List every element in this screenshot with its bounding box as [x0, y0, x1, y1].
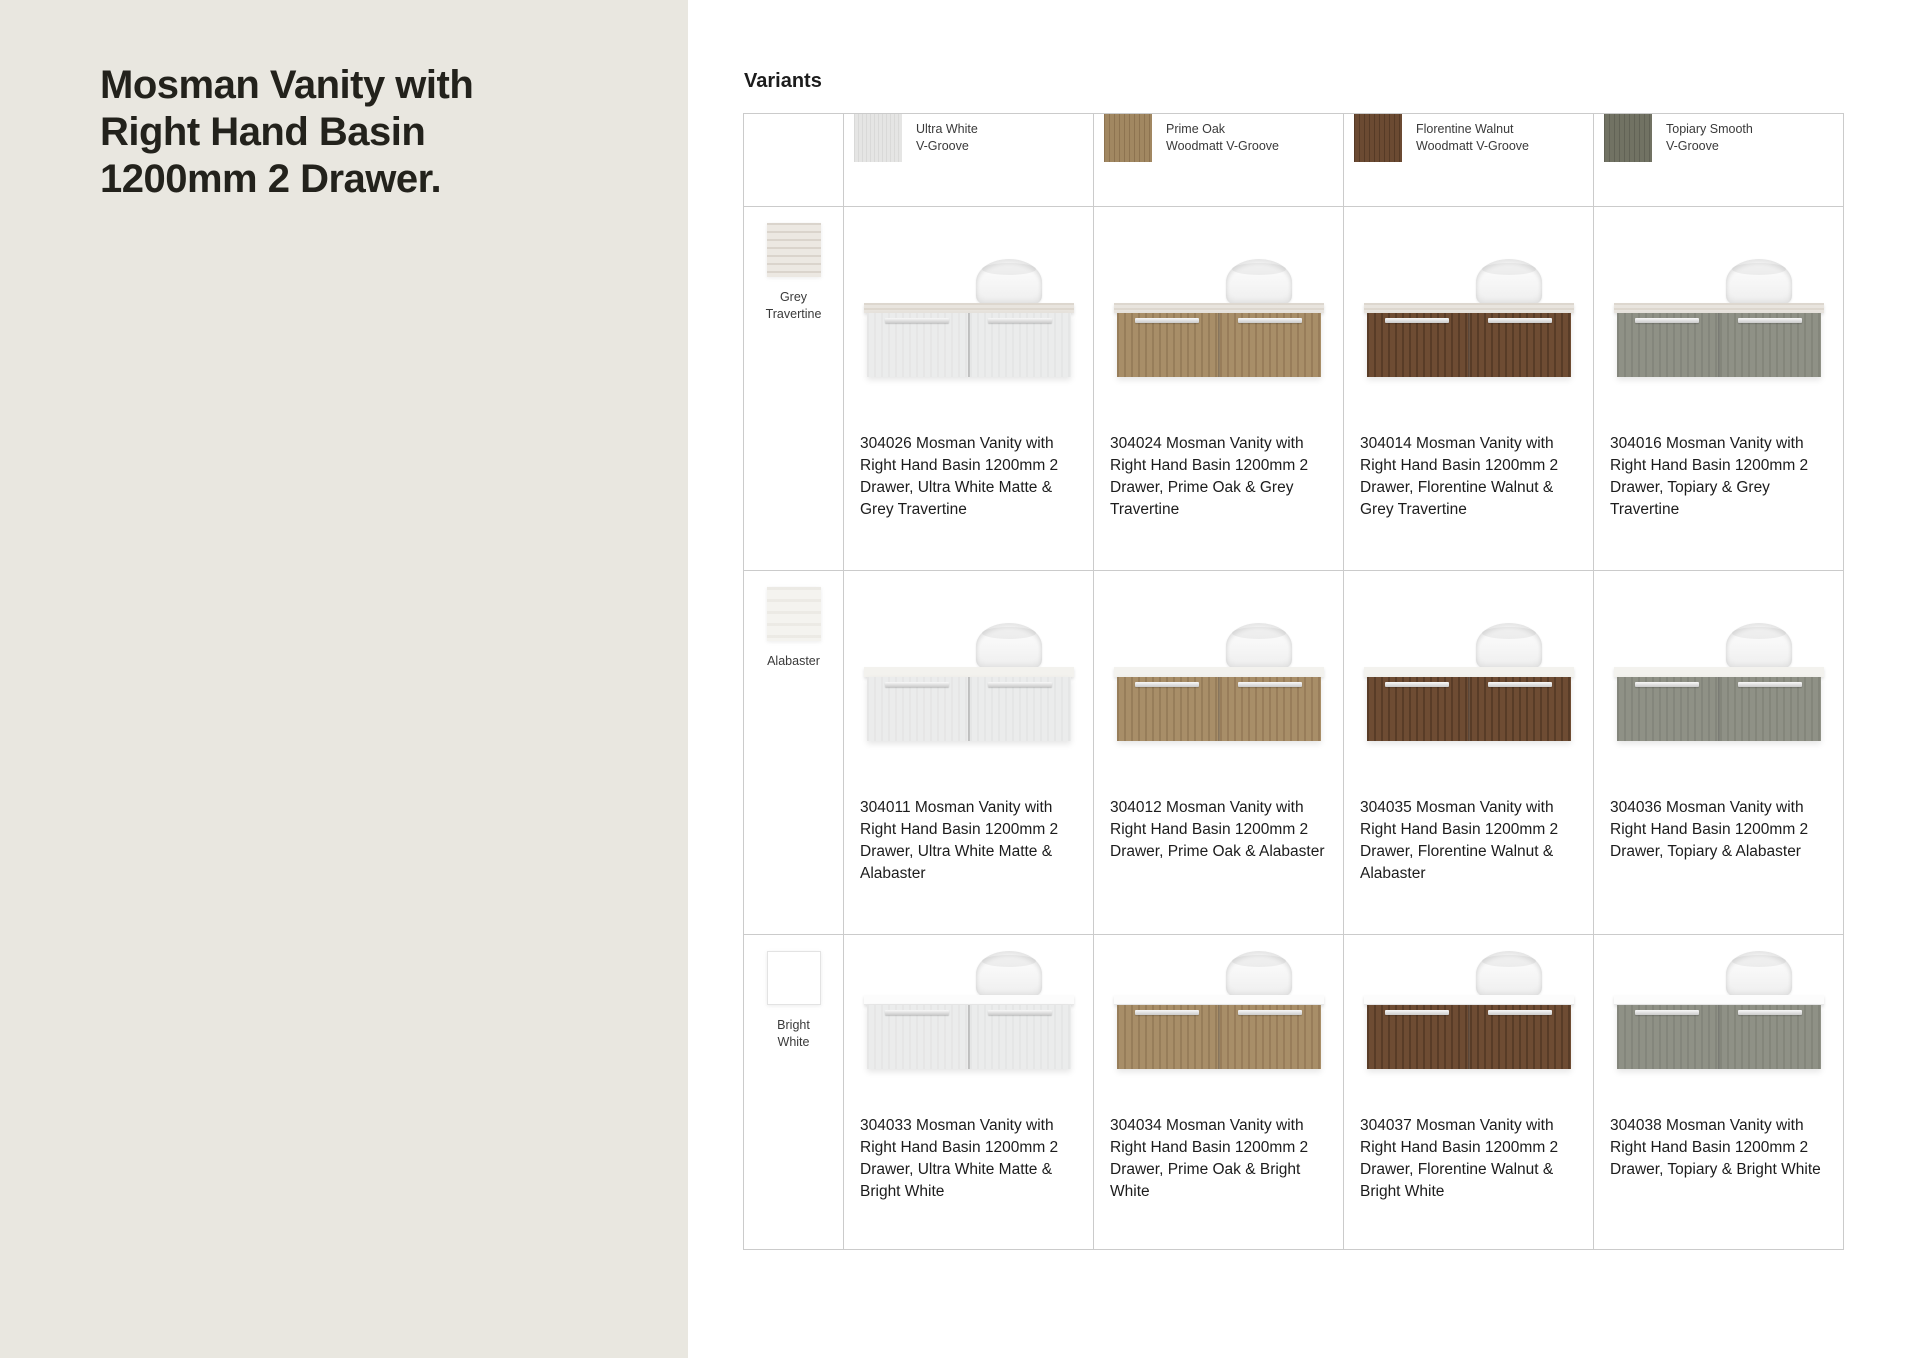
variant-cell: 304038 Mosman Vanity with Right Hand Bas…: [1594, 935, 1844, 1250]
page-title: Mosman Vanity with Right Hand Basin 1200…: [100, 62, 500, 204]
drawer-handle: [1385, 318, 1449, 323]
product-image: [1594, 935, 1843, 1115]
variants-table: Ultra WhiteV-Groove Prime OakWoodmatt V-…: [743, 113, 1844, 1250]
finish-swatch-prime-oak: [1104, 114, 1152, 162]
countertop-illustration: [1364, 995, 1574, 1005]
variant-cell: 304036 Mosman Vanity with Right Hand Bas…: [1594, 571, 1844, 935]
drawer-handle: [1238, 682, 1302, 687]
variant-description: 304016 Mosman Vanity with Right Hand Bas…: [1594, 433, 1843, 522]
countertop-illustration: [1614, 303, 1824, 313]
table-header-row: Ultra WhiteV-Groove Prime OakWoodmatt V-…: [744, 114, 1844, 207]
row-header-label: Alabaster: [762, 653, 826, 670]
basin-illustration: [976, 623, 1042, 669]
vanity-illustration: [1114, 951, 1324, 1069]
variant-description: 304026 Mosman Vanity with Right Hand Bas…: [844, 433, 1093, 522]
variant-description: 304034 Mosman Vanity with Right Hand Bas…: [1094, 1115, 1343, 1204]
variant-description: 304011 Mosman Vanity with Right Hand Bas…: [844, 797, 1093, 886]
variant-cell: 304026 Mosman Vanity with Right Hand Bas…: [844, 207, 1094, 571]
countertop-illustration: [1614, 667, 1824, 677]
product-image: [844, 935, 1093, 1115]
table-row-bright-white: Bright White 304033 Mosman Vanity with R…: [744, 935, 1844, 1250]
variant-description: 304033 Mosman Vanity with Right Hand Bas…: [844, 1115, 1093, 1204]
row-header-bright-white: Bright White: [744, 935, 844, 1250]
product-image: [1094, 571, 1343, 797]
drawer-handle: [1488, 318, 1552, 323]
drawer-handle: [1385, 682, 1449, 687]
catalog-page: Mosman Vanity with Right Hand Basin 1200…: [0, 0, 1920, 1358]
drawer-handle: [1738, 682, 1802, 687]
finish-swatch-topiary: [1604, 114, 1652, 162]
drawer-handle: [885, 682, 949, 687]
countertop-illustration: [1114, 667, 1324, 677]
variant-cell: 304034 Mosman Vanity with Right Hand Bas…: [1094, 935, 1344, 1250]
top-swatch-grey-travertine: [767, 223, 821, 277]
variant-description: 304038 Mosman Vanity with Right Hand Bas…: [1594, 1115, 1843, 1181]
row-header-label: Grey Travertine: [762, 289, 826, 323]
basin-illustration: [976, 259, 1042, 305]
drawer-handle: [1488, 682, 1552, 687]
variant-cell: 304037 Mosman Vanity with Right Hand Bas…: [1344, 935, 1594, 1250]
product-image: [1594, 207, 1843, 433]
variant-description: 304012 Mosman Vanity with Right Hand Bas…: [1094, 797, 1343, 863]
row-header-alabaster: Alabaster: [744, 571, 844, 935]
drawer-handle: [1488, 1010, 1552, 1015]
drawer-handle: [988, 682, 1052, 687]
column-header-prime-oak: Prime OakWoodmatt V-Groove: [1094, 114, 1344, 207]
variant-description: 304035 Mosman Vanity with Right Hand Bas…: [1344, 797, 1593, 886]
column-header-topiary: Topiary SmoothV-Groove: [1594, 114, 1844, 207]
vanity-illustration: [1614, 259, 1824, 377]
drawer-handle: [885, 1010, 949, 1015]
table-row-alabaster: Alabaster 304011 Mosman Vanity with Righ…: [744, 571, 1844, 935]
drawer-handle: [1738, 318, 1802, 323]
row-header-label: Bright White: [762, 1017, 826, 1051]
countertop-illustration: [864, 303, 1074, 313]
basin-illustration: [976, 951, 1042, 997]
row-header-grey-travertine: Grey Travertine: [744, 207, 844, 571]
drawer-handle: [1738, 1010, 1802, 1015]
basin-illustration: [1476, 951, 1542, 997]
product-image: [844, 207, 1093, 433]
vanity-illustration: [1364, 951, 1574, 1069]
drawer-handle: [1135, 682, 1199, 687]
drawer-handle: [1635, 1010, 1699, 1015]
drawer-handle: [1135, 1010, 1199, 1015]
countertop-illustration: [1364, 667, 1574, 677]
vanity-illustration: [864, 259, 1074, 377]
column-header-florentine-walnut: Florentine WalnutWoodmatt V-Groove: [1344, 114, 1594, 207]
drawer-handle: [1385, 1010, 1449, 1015]
basin-illustration: [1726, 951, 1792, 997]
countertop-illustration: [1364, 303, 1574, 313]
drawer-handle: [1635, 318, 1699, 323]
vanity-illustration: [1114, 623, 1324, 741]
drawer-handle: [1135, 318, 1199, 323]
variant-cell: 304033 Mosman Vanity with Right Hand Bas…: [844, 935, 1094, 1250]
column-header-label: Ultra WhiteV-Groove: [916, 121, 978, 156]
product-image: [844, 571, 1093, 797]
variant-cell: 304011 Mosman Vanity with Right Hand Bas…: [844, 571, 1094, 935]
variant-description: 304014 Mosman Vanity with Right Hand Bas…: [1344, 433, 1593, 522]
vanity-illustration: [1114, 259, 1324, 377]
table-row-grey-travertine: Grey Travertine 304026 Mosman Vanity wit…: [744, 207, 1844, 571]
product-image: [1344, 207, 1593, 433]
product-image: [1344, 571, 1593, 797]
variant-description: 304024 Mosman Vanity with Right Hand Bas…: [1094, 433, 1343, 522]
countertop-illustration: [1114, 995, 1324, 1005]
countertop-illustration: [1614, 995, 1824, 1005]
basin-illustration: [1226, 623, 1292, 669]
drawer-handle: [988, 1010, 1052, 1015]
vanity-illustration: [1614, 623, 1824, 741]
column-header-label: Topiary SmoothV-Groove: [1666, 121, 1753, 156]
drawer-handle: [1238, 318, 1302, 323]
basin-illustration: [1476, 623, 1542, 669]
product-image: [1094, 207, 1343, 433]
vanity-illustration: [864, 951, 1074, 1069]
basin-illustration: [1226, 951, 1292, 997]
finish-swatch-florentine-walnut: [1354, 114, 1402, 162]
countertop-illustration: [864, 995, 1074, 1005]
basin-illustration: [1726, 259, 1792, 305]
drawer-handle: [988, 318, 1052, 323]
basin-illustration: [1476, 259, 1542, 305]
variant-cell: 304012 Mosman Vanity with Right Hand Bas…: [1094, 571, 1344, 935]
corner-cell: [744, 114, 844, 207]
vanity-illustration: [1614, 951, 1824, 1069]
content-area: Variants Ultra WhiteV-Groove: [688, 0, 1920, 1358]
countertop-illustration: [864, 667, 1074, 677]
basin-illustration: [1726, 623, 1792, 669]
variant-description: 304037 Mosman Vanity with Right Hand Bas…: [1344, 1115, 1593, 1204]
drawer-handle: [885, 318, 949, 323]
variant-cell: 304014 Mosman Vanity with Right Hand Bas…: [1344, 207, 1594, 571]
column-header-ultra-white: Ultra WhiteV-Groove: [844, 114, 1094, 207]
basin-illustration: [1226, 259, 1292, 305]
variant-description: 304036 Mosman Vanity with Right Hand Bas…: [1594, 797, 1843, 863]
top-swatch-alabaster: [767, 587, 821, 641]
vanity-illustration: [1364, 259, 1574, 377]
column-header-label: Prime OakWoodmatt V-Groove: [1166, 121, 1279, 156]
variant-cell: 304024 Mosman Vanity with Right Hand Bas…: [1094, 207, 1344, 571]
drawer-handle: [1635, 682, 1699, 687]
product-image: [1344, 935, 1593, 1115]
left-panel: Mosman Vanity with Right Hand Basin 1200…: [0, 0, 688, 1358]
variant-cell: 304035 Mosman Vanity with Right Hand Bas…: [1344, 571, 1594, 935]
variant-cell: 304016 Mosman Vanity with Right Hand Bas…: [1594, 207, 1844, 571]
vanity-illustration: [1364, 623, 1574, 741]
drawer-handle: [1238, 1010, 1302, 1015]
countertop-illustration: [1114, 303, 1324, 313]
variants-heading: Variants: [744, 70, 1920, 93]
vanity-illustration: [864, 623, 1074, 741]
product-image: [1094, 935, 1343, 1115]
product-image: [1594, 571, 1843, 797]
column-header-label: Florentine WalnutWoodmatt V-Groove: [1416, 121, 1529, 156]
finish-swatch-ultra-white: [854, 114, 902, 162]
top-swatch-bright-white: [767, 951, 821, 1005]
